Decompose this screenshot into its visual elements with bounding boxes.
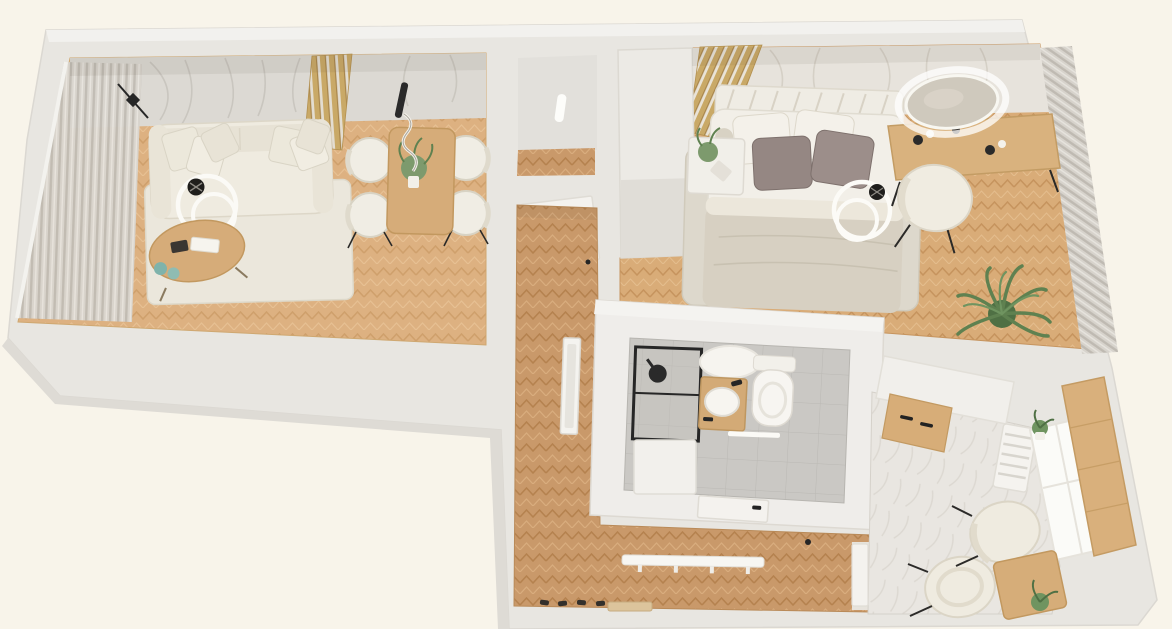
wall-hook xyxy=(586,260,591,265)
wall-hook xyxy=(805,539,811,545)
standing-mirror xyxy=(560,338,580,435)
room-bathroom xyxy=(590,300,884,530)
shower xyxy=(632,347,701,441)
room-living xyxy=(16,53,488,345)
bathroom-door xyxy=(697,496,768,523)
niche-floor xyxy=(517,148,595,176)
bath-vanity xyxy=(699,377,748,431)
blanket xyxy=(702,207,903,314)
floorplan-svg xyxy=(0,0,1172,629)
kitchen-small-table xyxy=(993,550,1068,620)
bath-ceiling-light xyxy=(700,346,760,378)
nightstand xyxy=(687,128,745,195)
doormat xyxy=(608,602,652,611)
floorplan-render xyxy=(0,0,1172,629)
toilet xyxy=(750,355,796,427)
dining-table xyxy=(387,127,456,235)
kitchen-door xyxy=(852,544,868,606)
bath-bench xyxy=(634,440,696,494)
